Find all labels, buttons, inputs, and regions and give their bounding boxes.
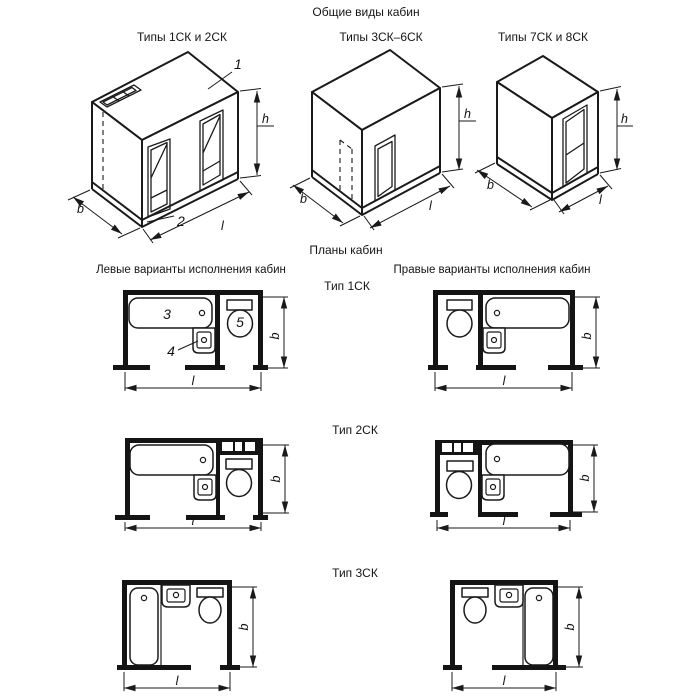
bathtub: 3 xyxy=(129,298,212,328)
row3-title: Тип 3СК xyxy=(332,566,378,580)
toilet-bowl xyxy=(447,472,472,499)
plans-title: Планы кабин xyxy=(309,243,382,257)
plan-2sk-right: b l xyxy=(420,432,605,532)
dim-label-b: b xyxy=(578,474,592,481)
vent-opening xyxy=(235,442,242,451)
dim-label-b: b xyxy=(237,623,251,630)
dim-label-b: b xyxy=(300,192,307,206)
plan-1sk-left: 3 4 5 b l xyxy=(105,288,295,393)
row2-title: Тип 2СК xyxy=(332,423,378,437)
dim-label-l: l xyxy=(599,193,603,207)
callout-5-label: 5 xyxy=(236,314,244,330)
dimension-h: h xyxy=(600,87,633,174)
basin-tap xyxy=(203,485,208,490)
bathtub-drain xyxy=(199,310,204,315)
toilet-tank xyxy=(462,588,488,597)
bathtub xyxy=(486,444,569,475)
toilet xyxy=(447,300,472,337)
main-title: Общие виды кабин xyxy=(312,5,419,19)
basin-tap xyxy=(491,485,496,490)
vent-opening xyxy=(463,443,473,452)
dimension-b: b xyxy=(558,587,583,667)
dim-label-l: l xyxy=(176,674,180,688)
dim-label-b: b xyxy=(77,202,84,216)
toilet-bowl xyxy=(464,597,486,623)
dimension-l: l xyxy=(124,672,230,691)
bathtub xyxy=(130,445,213,475)
cabin-box xyxy=(312,50,440,215)
plan-1sk-right: b l xyxy=(420,288,605,393)
plan-2sk-left: b l xyxy=(105,432,300,532)
toilet: 5 xyxy=(227,300,253,337)
washbasin xyxy=(483,328,505,353)
washbasin: 4 xyxy=(167,328,215,359)
plan-3sk-left: b l xyxy=(112,572,272,697)
view2-title: Типы 3СК–6СК xyxy=(339,30,422,44)
toilet xyxy=(197,588,223,623)
basin-tap xyxy=(492,338,497,343)
dimension-l: l xyxy=(125,372,261,391)
toilet xyxy=(462,588,488,623)
dimension-b: b xyxy=(263,297,288,368)
callout-3-label: 3 xyxy=(163,306,171,322)
dimension-h: h xyxy=(442,84,476,172)
basin-tap xyxy=(506,592,511,597)
dimension-l: l xyxy=(452,672,556,691)
dimension-b: b xyxy=(263,445,289,513)
vent-opening xyxy=(454,443,461,452)
dim-label-h: h xyxy=(621,112,628,126)
toilet-bowl xyxy=(447,310,472,337)
dimension-b: b xyxy=(573,445,598,512)
bathtub-drain xyxy=(536,595,541,600)
bathtub xyxy=(130,588,158,665)
plan-3sk-right: b l xyxy=(435,572,595,697)
toilet-tank xyxy=(226,459,252,469)
dim-label-b: b xyxy=(269,475,283,482)
view3-title: Типы 7СК и 8СК xyxy=(498,30,588,44)
bathtub-drain xyxy=(200,457,205,462)
dim-label-l: l xyxy=(221,219,225,233)
row1-title: Тип 1СК xyxy=(324,279,370,293)
bathtub-drain xyxy=(494,310,499,315)
callout-1-label: 1 xyxy=(234,56,242,72)
dim-label-b: b xyxy=(580,332,594,339)
callout-4-label: 4 xyxy=(167,343,175,359)
bathtub xyxy=(486,298,569,328)
vent-opening xyxy=(222,442,233,451)
washbasin xyxy=(194,475,216,500)
callout-2-label: 2 xyxy=(176,213,185,229)
dim-label-b: b xyxy=(487,178,494,192)
dim-label-l: l xyxy=(429,199,433,213)
dim-label-l: l xyxy=(192,374,196,388)
dim-label-h: h xyxy=(464,107,471,121)
dim-label-b: b xyxy=(563,623,577,630)
bathtub-drain xyxy=(494,456,499,461)
toilet-tank xyxy=(227,300,252,310)
toilet-tank xyxy=(447,300,472,310)
dimension-h: h xyxy=(240,89,274,179)
dim-label-l: l xyxy=(503,374,507,388)
left-variants-title: Левые варианты исполнения кабин xyxy=(96,264,286,276)
washbasin xyxy=(482,475,504,500)
iso-view-3sk-6sk: h b l xyxy=(288,48,478,233)
drawing-sheet: Общие виды кабин Типы 1СК и 2СК Типы 3СК… xyxy=(0,0,700,700)
vent-opening xyxy=(442,443,452,452)
iso-view-1sk-2sk: h b l 1 2 xyxy=(60,50,290,245)
vent-opening xyxy=(245,442,255,451)
dimension-b: b xyxy=(575,297,600,368)
basin-tap xyxy=(173,592,178,597)
view1-title: Типы 1СК и 2СК xyxy=(137,30,227,44)
washbasin xyxy=(495,585,523,607)
basin-tap xyxy=(202,338,207,343)
bathtub-drain xyxy=(141,595,146,600)
cabin-box xyxy=(497,56,598,200)
dimension-l: l xyxy=(435,372,572,391)
toilet-bowl xyxy=(227,470,252,497)
toilet xyxy=(226,459,252,497)
dim-label-l: l xyxy=(503,674,507,688)
toilet xyxy=(447,461,474,499)
dimension-b: b xyxy=(232,587,257,667)
iso-view-7sk-8sk: h b l xyxy=(475,48,665,218)
toilet-tank xyxy=(447,461,473,471)
toilet-bowl xyxy=(199,597,221,623)
dim-label-b: b xyxy=(268,332,282,339)
right-variants-title: Правые варианты исполнения кабин xyxy=(394,264,591,276)
bathtub xyxy=(525,588,553,665)
washbasin xyxy=(162,585,190,607)
toilet-tank xyxy=(197,588,223,597)
dim-label-h: h xyxy=(262,112,269,126)
cabin-box xyxy=(92,52,238,227)
